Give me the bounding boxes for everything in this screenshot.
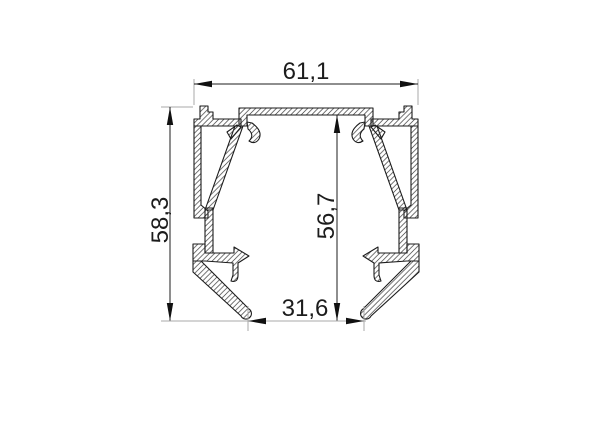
profile-outer-wall: [404, 126, 418, 218]
profile-top-plate: [239, 108, 373, 126]
profile-clip-hook: [247, 122, 260, 143]
arrowhead-up: [334, 115, 340, 133]
profile-top-flange: [194, 106, 241, 126]
dimension-label-overall-height: 58,3: [147, 197, 174, 244]
technical-drawing-canvas: 61,1 58,3 56,7 31,6: [0, 0, 600, 424]
arrowhead-right: [400, 81, 418, 87]
profile-lower-wall: [205, 208, 213, 253]
dimension-label-inner-height: 56,7: [313, 193, 340, 240]
profile-left-half: [193, 106, 260, 319]
profile-outer-wall: [194, 126, 208, 218]
arrowhead-up: [167, 107, 173, 125]
profile-section-drawing: 61,1 58,3 56,7 31,6: [0, 0, 600, 424]
arrowhead-right: [346, 318, 364, 324]
profile-lower-wall: [399, 208, 407, 253]
arrowhead-left: [248, 318, 266, 324]
profile-clip-hook: [352, 122, 365, 143]
profile-cross-section: [193, 106, 419, 319]
profile-inner-diagonal-wall: [369, 126, 407, 210]
dimension-bottom-width: 31,6: [161, 295, 366, 331]
arrowhead-down: [334, 303, 340, 321]
dimension-label-bottom-width: 31,6: [282, 295, 329, 322]
arrowhead-left: [194, 81, 212, 87]
profile-top-flange: [371, 106, 418, 126]
profile-bottom-leg: [193, 261, 251, 319]
dimension-overall-height: 58,3: [147, 107, 193, 321]
dimension-inner-height: 56,7: [313, 115, 340, 321]
profile-right-half: [352, 106, 419, 319]
arrowhead-down: [167, 303, 173, 321]
profile-inner-diagonal-wall: [205, 126, 243, 210]
profile-bottom-leg: [361, 261, 419, 319]
dimension-label-top-width: 61,1: [283, 58, 330, 85]
dimension-top-width: 61,1: [194, 58, 418, 105]
